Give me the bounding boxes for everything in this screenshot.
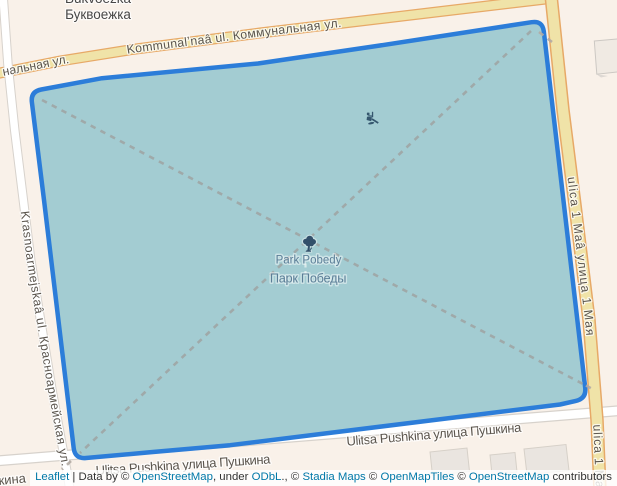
svg-text:Буквоежка: Буквоежка xyxy=(65,7,131,22)
svg-text:кина: кина xyxy=(0,470,27,486)
svg-text:Парк Победы: Парк Победы xyxy=(270,271,346,286)
svg-text:Park Pobedy: Park Pobedy xyxy=(276,255,342,267)
svg-text:Bukvoežka: Bukvoežka xyxy=(65,0,132,6)
